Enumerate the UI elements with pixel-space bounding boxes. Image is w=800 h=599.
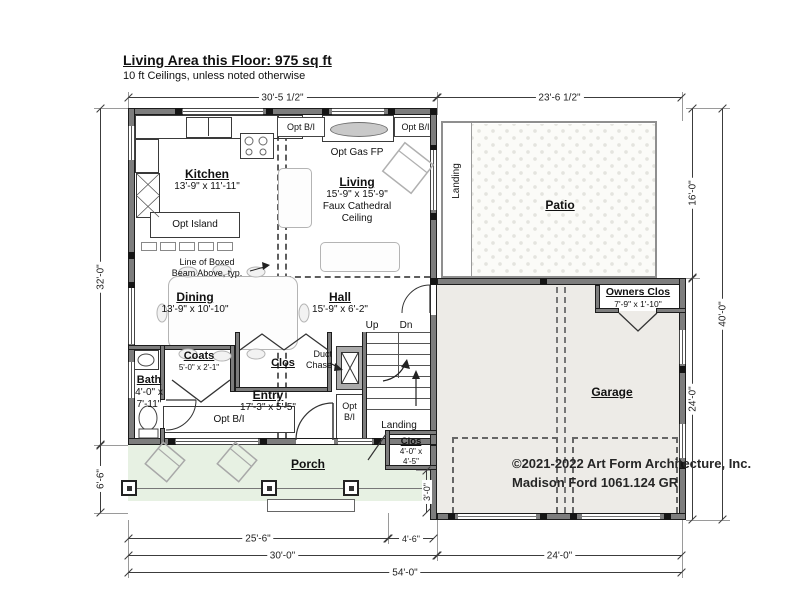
porch-clos-door bbox=[368, 434, 386, 460]
dim-right-garage: 24'-0" bbox=[692, 278, 693, 520]
dim-label: 54'-0" bbox=[389, 568, 420, 579]
entry-dims: 17'-3" x 5'-5" bbox=[218, 402, 318, 414]
hall-name: Hall bbox=[290, 290, 390, 304]
duct-note: Duct Chase bbox=[292, 349, 332, 371]
entry-name: Entry bbox=[218, 388, 318, 402]
dim-bottom-house: 30'-0" bbox=[128, 555, 437, 556]
beam-note: Line of Boxed Beam Above, typ. bbox=[164, 257, 250, 279]
dim-label: 24'-0" bbox=[688, 383, 699, 414]
toilet-tank bbox=[139, 429, 158, 438]
porch-chair bbox=[217, 442, 256, 481]
living-name: Living bbox=[297, 175, 417, 189]
kitchen-name: Kitchen bbox=[157, 167, 257, 181]
owners-clos-doors bbox=[619, 313, 657, 331]
living-note: Faux Cathedral bbox=[297, 201, 417, 213]
bath-name: Bath bbox=[127, 374, 171, 387]
dim-label: 30'-5 1/2" bbox=[258, 93, 306, 104]
dim-bottom-clos: 4'-6" bbox=[388, 538, 434, 539]
dim-left-porch: 6'-6" bbox=[100, 445, 101, 513]
dining-label: Dining 13'-9" x 10'-10" bbox=[145, 290, 245, 316]
stair-landing-label: Landing bbox=[369, 420, 429, 432]
opt-bi-bench-label: Opt B/I bbox=[163, 414, 295, 426]
patio-landing-label: Landing bbox=[451, 153, 463, 209]
coats-dims: 5'-0" x 2'-1" bbox=[166, 363, 232, 373]
plan-subtitle: 10 ft Ceilings, unless noted otherwise bbox=[123, 70, 305, 83]
patio-label: Patio bbox=[520, 198, 600, 212]
dim-bottom-garage: 24'-0" bbox=[437, 555, 682, 556]
copyright-line1: ©2021-2022 Art Form Architecture, Inc. bbox=[512, 455, 751, 474]
duct-note-line2: Chase bbox=[306, 360, 332, 370]
living-note: Ceiling bbox=[297, 213, 417, 225]
beam-note-line2: Beam Above, typ. bbox=[172, 268, 243, 278]
porch-clos-label: Clos 4'-0" x 4'-5" bbox=[388, 436, 434, 467]
copyright-line2: Madison Ford 1061.124 GR bbox=[512, 474, 751, 493]
dn-label: Dn bbox=[394, 320, 418, 332]
sink-bowl bbox=[138, 354, 154, 366]
opt-text: Opt bbox=[342, 401, 357, 411]
duct-note-line1: Duct bbox=[313, 349, 332, 359]
dim-top-patio: 23'-6 1/2" bbox=[437, 97, 682, 98]
dim-bottom-porch: 25'-6" bbox=[128, 538, 388, 539]
dim-label: 32'-0" bbox=[96, 261, 107, 292]
bath-dims: 7'-11" bbox=[127, 399, 171, 411]
dim-top-house: 30'-5 1/2" bbox=[128, 97, 437, 98]
dim-right-patio: 16'-0" bbox=[692, 108, 693, 278]
porch-label: Porch bbox=[278, 457, 338, 471]
dim-label: 16'-0" bbox=[688, 177, 699, 208]
kitchen-label: Kitchen 13'-9" x 11'-11" bbox=[157, 167, 257, 193]
coats-name: Coats bbox=[166, 350, 232, 363]
dim-label: 4'-6" bbox=[399, 534, 423, 544]
garage-label: Garage bbox=[572, 385, 652, 399]
entry-clos-doors bbox=[240, 334, 328, 350]
opt-island-label: Opt Island bbox=[150, 219, 240, 231]
living-label: Living 15'-9" x 15'-9" Faux Cathedral Ce… bbox=[297, 175, 417, 225]
dim-right-total: 40'-0" bbox=[722, 108, 723, 520]
garage-door-arc bbox=[402, 285, 430, 313]
dim-label: 30'-0" bbox=[267, 551, 298, 562]
beam-note-arrowhead bbox=[262, 262, 270, 270]
dim-label: 3'-0" bbox=[422, 480, 432, 504]
owners-clos-label: Owners Clos 7'-9" x 1'-10" bbox=[598, 286, 678, 309]
dim-left-house: 32'-0" bbox=[100, 108, 101, 445]
floor-plan: Living Area this Floor: 975 sq ft 10 ft … bbox=[0, 0, 800, 599]
dim-label: 23'-6 1/2" bbox=[535, 93, 583, 104]
dim-label: 6'-6" bbox=[96, 466, 107, 492]
porch-clos-dims: 4'-0" x bbox=[388, 447, 434, 457]
kitchen-dims: 13'-9" x 11'-11" bbox=[157, 181, 257, 193]
duct-note-arrowhead bbox=[334, 363, 343, 371]
porch-chair bbox=[145, 442, 184, 481]
hall-dims: 15'-9" x 6'-2" bbox=[290, 304, 390, 316]
burner bbox=[245, 137, 253, 145]
beam-note-line1: Line of Boxed bbox=[179, 257, 234, 267]
opt-gas-fp-label: Opt Gas FP bbox=[312, 147, 402, 159]
bath-label: Bath 4'-0" x 7'-11" bbox=[127, 374, 171, 411]
living-dims: 15'-9" x 15'-9" bbox=[297, 189, 417, 201]
stair-curve-arrowhead bbox=[401, 359, 410, 369]
dining-dims: 13'-9" x 10'-10" bbox=[145, 304, 245, 316]
burner bbox=[246, 149, 252, 155]
coats-label: Coats 5'-0" x 2'-1" bbox=[166, 350, 232, 373]
porch-clos-name: Clos bbox=[388, 436, 434, 447]
dim-label: 25'-6" bbox=[242, 534, 273, 545]
dim-label: 40'-0" bbox=[718, 298, 729, 329]
dim-bottom-total: 54'-0" bbox=[128, 572, 682, 573]
cabinet-x bbox=[137, 174, 159, 217]
dim-clos-passage: 3'-0" bbox=[426, 470, 427, 513]
opt-bi-stairs-label: OptB/I bbox=[336, 401, 363, 423]
porch-clos-dims: 4'-5" bbox=[388, 457, 434, 467]
duct-x bbox=[342, 353, 358, 383]
dining-name: Dining bbox=[145, 290, 245, 304]
dim-label: 24'-0" bbox=[544, 551, 575, 562]
up-label: Up bbox=[360, 320, 384, 332]
entry-label: Entry 17'-3" x 5'-5" bbox=[218, 388, 318, 414]
stair-arrowhead bbox=[412, 370, 420, 379]
owners-clos-dims: 7'-9" x 1'-10" bbox=[598, 299, 678, 309]
copyright: ©2021-2022 Art Form Architecture, Inc. M… bbox=[512, 455, 751, 493]
bi-text: B/I bbox=[344, 412, 355, 422]
plan-title: Living Area this Floor: 975 sq ft bbox=[123, 52, 332, 69]
bath-dims: 4'-0" x bbox=[127, 387, 171, 399]
burner bbox=[259, 137, 267, 145]
stair-curve-arrow bbox=[383, 362, 406, 381]
burner bbox=[260, 149, 266, 155]
plan-linework bbox=[0, 0, 800, 599]
owners-clos-name: Owners Clos bbox=[598, 286, 678, 299]
hall-label: Hall 15'-9" x 6'-2" bbox=[290, 290, 390, 316]
